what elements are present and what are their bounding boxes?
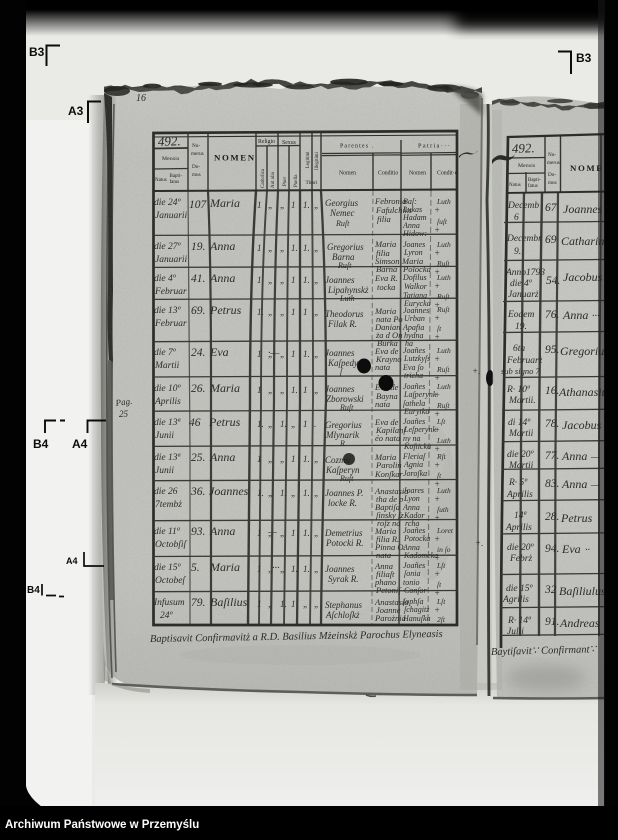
svg-text:1.: 1. xyxy=(303,349,310,359)
svg-text:Walkor: Walkor xyxy=(404,282,428,291)
svg-text:Ruſt: Ruſt xyxy=(339,474,354,483)
svg-text:Jacobus: Jacobus xyxy=(563,270,603,284)
svg-text:Religio: Religio xyxy=(258,139,275,145)
svg-text:Patria···: Patria··· xyxy=(418,143,451,150)
svg-text:B4: B4 xyxy=(33,437,49,451)
svg-text:„: „ xyxy=(314,528,319,538)
svg-text:+: + xyxy=(434,569,440,579)
svg-text:Natus: Natus xyxy=(155,178,167,183)
svg-text:„: „ xyxy=(268,275,273,285)
svg-text:1.: 1. xyxy=(280,488,287,498)
svg-text:R· 5º: R· 5º xyxy=(508,478,528,488)
svg-text:Februarż: Februarż xyxy=(506,356,543,366)
svg-text:1.: 1. xyxy=(291,564,298,574)
svg-text:Illegitimi: Illegitimi xyxy=(315,151,320,170)
svg-text:Aut alia: Aut alia xyxy=(271,171,276,188)
svg-text:Joannes: Joannes xyxy=(563,202,603,216)
svg-text:1.: 1. xyxy=(291,385,298,395)
svg-text:„: „ xyxy=(280,275,285,285)
svg-text:nata: nata xyxy=(375,362,390,372)
svg-text:die 20º: die 20º xyxy=(507,543,534,553)
svg-text:1: 1 xyxy=(303,307,308,317)
svg-text:1.: 1. xyxy=(303,564,310,574)
svg-text:1: 1 xyxy=(303,419,308,429)
svg-text:6: 6 xyxy=(514,213,519,223)
svg-text:merus: merus xyxy=(191,151,204,157)
svg-text:41.: 41. xyxy=(191,273,205,285)
svg-text:Baſilius: Baſilius xyxy=(210,595,248,609)
svg-text:93.: 93. xyxy=(191,526,205,538)
svg-text:Filak R.: Filak R. xyxy=(327,319,357,329)
svg-text:Joroſka: Joroſka xyxy=(403,469,427,478)
svg-text:A4: A4 xyxy=(66,556,78,566)
svg-text:B3: B3 xyxy=(576,51,592,65)
svg-text:Eurytka: Eurytka xyxy=(403,407,429,416)
svg-text:Aprilis: Aprilis xyxy=(505,523,532,533)
svg-text:„: „ xyxy=(268,454,273,464)
svg-text:„: „ xyxy=(268,488,273,498)
svg-text:„: „ xyxy=(314,454,319,464)
svg-text:26.: 26. xyxy=(191,383,205,395)
svg-text:nata: nata xyxy=(375,399,390,409)
svg-text:1: 1 xyxy=(291,454,296,464)
svg-text:Ruſt: Ruſt xyxy=(339,403,354,412)
svg-text:Gregorius: Gregorius xyxy=(327,242,364,252)
svg-text:Dofilus: Dofilus xyxy=(402,273,427,282)
svg-text:Bapti-: Bapti- xyxy=(528,178,541,183)
svg-text:Natus: Natus xyxy=(509,183,521,188)
svg-text:Stephanus: Stephanus xyxy=(325,600,362,610)
svg-text:locke R.: locke R. xyxy=(328,498,357,508)
svg-text:Conditio: Conditio xyxy=(378,171,398,177)
svg-text:die 11ª: die 11ª xyxy=(154,527,180,537)
svg-text:Konſkar: Konſkar xyxy=(374,469,404,479)
svg-text:+.: +. xyxy=(475,538,483,548)
svg-text:+: + xyxy=(434,494,440,504)
svg-text:1.: 1. xyxy=(257,488,264,498)
svg-text:ſonia: ſonia xyxy=(404,569,420,578)
svg-text:Nomen: Nomen xyxy=(339,171,356,177)
svg-text:1: 1 xyxy=(303,385,308,395)
svg-text:die 26: die 26 xyxy=(154,487,178,497)
svg-text:1: 1 xyxy=(291,275,296,285)
svg-text:Hanuſka: Hanuſka xyxy=(402,614,431,623)
svg-text:„: „ xyxy=(280,243,285,253)
svg-text:R.: R. xyxy=(339,439,347,448)
svg-text:„: „ xyxy=(268,528,273,538)
svg-text:19.: 19. xyxy=(191,241,205,253)
svg-text:Petoniſ: Petoniſ xyxy=(375,585,402,595)
svg-text:79.: 79. xyxy=(191,597,205,609)
svg-text:„: „ xyxy=(314,349,319,359)
svg-text:die 10º: die 10º xyxy=(154,384,181,394)
svg-text:+: + xyxy=(434,390,440,400)
svg-text:die 15º: die 15º xyxy=(506,584,533,594)
svg-text:1: 1 xyxy=(257,564,262,574)
svg-text:„: „ xyxy=(268,419,273,429)
svg-text:„: „ xyxy=(314,307,319,317)
svg-text:Archiwum Państwowe w Przemyślu: Archiwum Państwowe w Przemyślu xyxy=(5,819,199,831)
svg-text:Mensis: Mensis xyxy=(162,156,179,162)
svg-text:„: „ xyxy=(268,564,273,574)
svg-text:2ſt: 2ſt xyxy=(437,615,446,624)
svg-text:Anna: Anna xyxy=(209,450,235,464)
svg-text:tocka: tocka xyxy=(377,282,395,292)
svg-text:Jacobus: Jacobus xyxy=(562,418,602,432)
svg-text:16: 16 xyxy=(136,93,146,104)
svg-text:Maria: Maria xyxy=(209,560,240,574)
svg-text:„: „ xyxy=(303,599,308,609)
svg-text:+: + xyxy=(434,460,440,470)
svg-text:1: 1 xyxy=(257,599,262,609)
svg-text:Gregorius: Gregorius xyxy=(325,420,362,430)
svg-text:Agrilis: Agrilis xyxy=(502,595,529,605)
svg-text:Demetrius: Demetrius xyxy=(324,528,363,538)
svg-text:Anna: Anna xyxy=(209,524,235,538)
svg-text:Joannes: Joannes xyxy=(325,564,355,574)
svg-text:die 20º: die 20º xyxy=(507,450,534,460)
svg-text:+: + xyxy=(434,313,440,323)
svg-text:B3: B3 xyxy=(29,45,45,59)
svg-text:A3: A3 xyxy=(68,104,84,118)
svg-text:69: 69 xyxy=(545,234,557,246)
svg-text:9.: 9. xyxy=(514,247,521,257)
svg-text:1.: 1. xyxy=(303,454,310,464)
svg-text:Nu-: Nu- xyxy=(548,152,556,158)
svg-text:1.: 1. xyxy=(303,488,310,498)
svg-text:Do-: Do- xyxy=(548,172,556,178)
svg-text:„: „ xyxy=(314,385,319,395)
svg-text:„: „ xyxy=(268,349,273,359)
svg-text:éo nata: éo nata xyxy=(375,433,400,443)
svg-text:Lutzkyſs: Lutzkyſs xyxy=(403,354,430,363)
svg-text:„: „ xyxy=(314,200,319,210)
svg-text:Ruſt: Ruſt xyxy=(335,219,350,228)
svg-text:„: „ xyxy=(280,528,285,538)
svg-text:24.: 24. xyxy=(191,347,205,359)
svg-text:Eodem: Eodem xyxy=(507,310,535,320)
svg-text:46: 46 xyxy=(189,417,201,429)
svg-text:B4: B4 xyxy=(27,585,40,596)
svg-text:Januarż: Januarż xyxy=(508,290,539,300)
svg-text:1.: 1. xyxy=(257,307,264,317)
svg-text:Puer: Puer xyxy=(283,177,288,187)
svg-text:16.: 16. xyxy=(545,385,559,397)
svg-text:1: 1 xyxy=(291,528,296,538)
svg-text:Januarii: Januarii xyxy=(155,255,188,265)
svg-text:+: + xyxy=(434,354,440,364)
svg-text:Anna: Anna xyxy=(561,477,587,491)
svg-text:mus: mus xyxy=(548,180,557,186)
svg-text:fatus: fatus xyxy=(170,180,180,185)
svg-text:filia: filia xyxy=(377,214,391,224)
svg-text:1.: 1. xyxy=(257,419,264,429)
svg-text:95.: 95. xyxy=(545,344,559,356)
svg-text:Kadomcka: Kadomcka xyxy=(403,551,438,560)
svg-text:+: + xyxy=(434,332,440,342)
svg-text:Octobſiſ: Octobſiſ xyxy=(155,539,187,550)
svg-text:„: „ xyxy=(280,307,285,317)
svg-text:Aprilis: Aprilis xyxy=(506,490,533,500)
svg-text:32: 32 xyxy=(544,584,557,596)
svg-text:Anna: Anna xyxy=(561,449,587,463)
svg-text:+: + xyxy=(434,534,440,544)
svg-text:67: 67 xyxy=(545,202,558,214)
svg-text:Joannes P.: Joannes P. xyxy=(325,488,363,498)
svg-text:Aſchloſkż: Aſchloſkż xyxy=(325,610,360,620)
svg-text:Joannes: Joannes xyxy=(209,484,249,498)
svg-text:Februar: Februar xyxy=(154,287,187,297)
svg-text:Laſperynk: Laſperynk xyxy=(403,390,437,399)
svg-text:Anna: Anna xyxy=(209,239,235,253)
svg-text:1.: 1. xyxy=(303,200,310,210)
svg-text:die 13º: die 13º xyxy=(154,306,181,316)
svg-text:107: 107 xyxy=(189,199,208,211)
svg-text:„: „ xyxy=(268,243,273,253)
svg-text:5.: 5. xyxy=(191,562,200,574)
svg-text:1: 1 xyxy=(257,200,262,210)
svg-text:Januarii: Januarii xyxy=(155,211,188,221)
svg-text:Theodorus: Theodorus xyxy=(325,309,364,319)
svg-text:76.: 76. xyxy=(545,309,559,321)
svg-text:Anna: Anna xyxy=(562,308,588,322)
svg-text:25.: 25. xyxy=(191,452,205,464)
svg-text:+: + xyxy=(434,425,440,435)
svg-text:Joannes: Joannes xyxy=(325,384,355,394)
svg-text:„: „ xyxy=(280,454,285,464)
svg-text:die 24º: die 24º xyxy=(154,198,181,208)
svg-text:Nomen: Nomen xyxy=(409,171,426,177)
svg-text:Martii: Martii xyxy=(154,361,180,371)
svg-text:Andreas: Andreas xyxy=(559,616,600,630)
svg-text:1: 1 xyxy=(257,454,262,464)
svg-text:Petrus: Petrus xyxy=(209,303,242,317)
svg-text:+.: +. xyxy=(472,366,480,376)
svg-text:„: „ xyxy=(314,275,319,285)
svg-text:+: + xyxy=(434,513,440,523)
svg-text:„: „ xyxy=(291,488,296,498)
svg-text:77.: 77. xyxy=(545,450,559,462)
svg-text:+: + xyxy=(434,605,440,615)
svg-text:Parożnia: Parożnia xyxy=(374,613,406,623)
svg-text:Anno1793: Anno1793 xyxy=(505,268,545,278)
svg-text:Nemec: Nemec xyxy=(329,208,355,218)
svg-text:fatus: fatus xyxy=(528,184,538,189)
svg-text:„: „ xyxy=(268,599,273,609)
svg-text:492.: 492. xyxy=(512,140,535,156)
svg-text:Legitimi: Legitimi xyxy=(306,151,311,168)
svg-text:1.: 1. xyxy=(303,243,310,253)
svg-text:Do-: Do- xyxy=(192,164,200,170)
svg-text:1: 1 xyxy=(257,275,262,285)
svg-text:Syrak R.: Syrak R. xyxy=(328,574,359,584)
svg-text:Conſor: Conſor xyxy=(404,586,428,595)
svg-text:91.: 91. xyxy=(545,616,559,628)
svg-text:Leſperynk: Leſperynk xyxy=(403,425,436,434)
svg-text:1: 1 xyxy=(291,349,296,359)
svg-text:Puella: Puella xyxy=(294,174,299,187)
svg-text:Agnia: Agnia xyxy=(403,460,423,469)
svg-text:.: . xyxy=(314,419,316,429)
svg-text:tricha: tricha xyxy=(404,371,423,380)
svg-text:Maria: Maria xyxy=(209,196,240,210)
svg-text:7tembż: 7tembż xyxy=(155,500,182,510)
svg-text:1: 1 xyxy=(291,307,296,317)
svg-text:14ª: 14ª xyxy=(514,511,527,521)
svg-text:1.: 1. xyxy=(280,419,287,429)
svg-text:Potocka: Potocka xyxy=(403,534,430,543)
svg-text:ſchagitż: ſchagitż xyxy=(404,605,430,614)
svg-text:···: ··· xyxy=(272,563,280,574)
svg-text:Julii: Julii xyxy=(507,627,524,637)
svg-text:1.: 1. xyxy=(303,275,310,285)
svg-text:+: + xyxy=(434,281,440,291)
svg-text:Bapti-: Bapti- xyxy=(170,174,183,179)
svg-text:492.: 492. xyxy=(158,133,181,149)
svg-text:Februar: Februar xyxy=(154,319,187,329)
svg-text:Hidow:: Hidow: xyxy=(402,229,427,238)
svg-text:Condit·o: Condit·o xyxy=(437,171,458,177)
svg-text:Joannes: Joannes xyxy=(325,348,355,358)
svg-text:36.: 36. xyxy=(190,486,205,498)
svg-text:Luth: Luth xyxy=(339,294,355,303)
svg-text:„: „ xyxy=(314,488,319,498)
svg-text:Infusum: Infusum xyxy=(153,597,185,608)
svg-text:nata: nata xyxy=(376,550,391,560)
svg-text:„: „ xyxy=(280,385,285,395)
svg-text:R· 10º: R· 10º xyxy=(506,385,531,395)
svg-text:Aprilis: Aprilis xyxy=(154,397,181,407)
svg-text:Eva: Eva xyxy=(209,345,229,359)
svg-text:1: 1 xyxy=(257,243,262,253)
svg-text:Georgius: Georgius xyxy=(325,198,359,208)
svg-text:Potocki R.: Potocki R. xyxy=(325,538,364,548)
svg-text:sub signo 7: sub signo 7 xyxy=(501,366,540,376)
svg-text:Martii: Martii xyxy=(508,461,534,471)
svg-text:1: 1 xyxy=(257,385,262,395)
svg-text:Koſticka: Koſticka xyxy=(403,442,431,451)
svg-text:„: „ xyxy=(280,564,285,574)
svg-text:Nu-: Nu- xyxy=(192,143,200,149)
svg-text:··: ·· xyxy=(585,545,590,556)
svg-text:R· 14º: R· 14º xyxy=(507,616,532,626)
svg-text:1: 1 xyxy=(257,349,262,359)
svg-text:„: „ xyxy=(268,385,273,395)
svg-text:Catholica: Catholica xyxy=(261,168,266,188)
svg-text:Febrż: Febrż xyxy=(509,554,532,564)
svg-text:Mensis: Mensis xyxy=(518,163,535,169)
svg-text:1: 1 xyxy=(291,200,296,210)
svg-text:di 14º: di 14º xyxy=(508,418,531,428)
svg-text:1: 1 xyxy=(291,599,296,609)
svg-text:6ta: 6ta xyxy=(513,344,525,354)
svg-text:Joannes: Joannes xyxy=(325,275,355,285)
svg-text:Petrus: Petrus xyxy=(208,415,241,429)
svg-text:Octobeſ: Octobeſ xyxy=(155,575,186,586)
svg-text:1.: 1. xyxy=(280,599,287,609)
svg-text:„: „ xyxy=(268,200,273,210)
svg-text:Petrus: Petrus xyxy=(560,511,593,525)
svg-text:+: + xyxy=(434,225,440,235)
svg-text:78.: 78. xyxy=(545,418,559,430)
svg-text:die 13ª: die 13ª xyxy=(154,453,180,463)
svg-text:1.: 1. xyxy=(303,528,310,538)
svg-text:Eva: Eva xyxy=(561,542,581,556)
svg-text:Martii: Martii xyxy=(508,429,534,439)
svg-text:54.: 54. xyxy=(546,275,560,287)
svg-text:„: „ xyxy=(314,599,319,609)
svg-text:Lyon: Lyon xyxy=(403,494,420,503)
svg-text:Junii: Junii xyxy=(155,431,174,441)
svg-text:Decembr: Decembr xyxy=(506,234,542,244)
svg-text:24º: 24º xyxy=(160,611,174,621)
svg-text:Parentes .: Parentes . xyxy=(340,144,374,150)
svg-text:Sexus: Sexus xyxy=(282,140,297,146)
svg-text:„: „ xyxy=(268,307,273,317)
svg-text:Anna: Anna xyxy=(209,271,235,285)
svg-text:Martii.: Martii. xyxy=(508,396,536,406)
svg-text:69.: 69. xyxy=(191,305,205,317)
svg-text:83.: 83. xyxy=(545,478,559,490)
svg-text:Junii: Junii xyxy=(155,466,174,476)
svg-text:Maria: Maria xyxy=(209,381,240,395)
svg-text:die 7º: die 7º xyxy=(154,348,177,358)
svg-text:94.: 94. xyxy=(545,543,559,555)
svg-text:die 15º: die 15º xyxy=(154,563,181,573)
svg-text:+: + xyxy=(434,205,440,215)
svg-text:28.: 28. xyxy=(545,511,559,523)
svg-text:die 4º: die 4º xyxy=(154,274,177,284)
svg-text:+: + xyxy=(434,248,440,258)
svg-text:Urban: Urban xyxy=(404,314,425,323)
svg-text:Decemb: Decemb xyxy=(507,201,539,211)
svg-text:„: „ xyxy=(314,564,319,574)
svg-text:Ruſt: Ruſt xyxy=(337,261,352,270)
svg-text:„: „ xyxy=(280,349,285,359)
svg-text:die 4º: die 4º xyxy=(510,279,533,289)
svg-text:„: „ xyxy=(280,200,285,210)
svg-text:NOMEN: NOMEN xyxy=(214,153,256,163)
svg-text:„: „ xyxy=(291,419,296,429)
svg-text:Thori: Thori xyxy=(306,180,318,186)
svg-text:25: 25 xyxy=(119,409,129,419)
svg-text:die 13ª: die 13ª xyxy=(154,418,180,428)
svg-text:1.: 1. xyxy=(291,243,298,253)
svg-text:19.: 19. xyxy=(515,322,527,332)
svg-text:1: 1 xyxy=(257,528,262,538)
svg-text:merus: merus xyxy=(547,160,560,166)
svg-text:die 27º: die 27º xyxy=(154,242,181,252)
svg-text:A4: A4 xyxy=(72,437,88,451)
svg-text:mus: mus xyxy=(192,172,201,178)
svg-text:„: „ xyxy=(314,243,319,253)
